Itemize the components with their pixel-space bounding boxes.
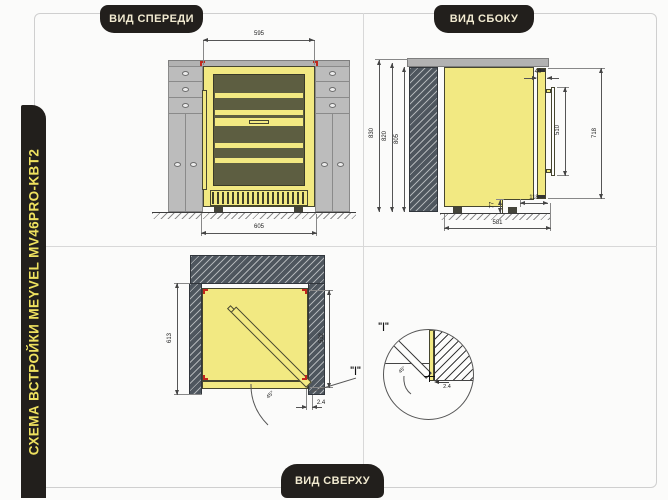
badge-front-label: ВИД СПЕРЕДИ — [109, 13, 194, 25]
dimension-arrow — [520, 201, 525, 205]
quadrant-divider-vertical — [363, 13, 364, 487]
detail-swing-arc — [384, 330, 474, 420]
dimension-arrow — [201, 231, 206, 235]
dimension-arrow — [563, 171, 567, 176]
dimension-arrow — [377, 207, 381, 212]
installation-schema-page: СХЕМА ВСТРОЙКИ MEYVEL MV46PRO-KBT2 ВИД С… — [0, 0, 668, 500]
cabinet-knob — [337, 162, 344, 167]
dimension-arrow — [203, 38, 208, 42]
dim-vent-height: 77 — [489, 202, 495, 209]
door-handle-front — [202, 90, 207, 190]
dimension-arrow — [402, 207, 406, 212]
dim-niche-depth: 613 — [167, 333, 173, 343]
top-cabinet-left-hatch — [189, 283, 202, 395]
cabinet-door-divider — [332, 113, 333, 212]
quadrant-divider-horizontal — [34, 246, 657, 247]
dimension-line — [444, 228, 551, 229]
drawer-knob — [182, 87, 189, 92]
dimension-line — [379, 60, 380, 212]
dimension-arrow — [390, 207, 394, 212]
dimension-arrow — [563, 87, 567, 92]
drawer-knob — [329, 71, 336, 76]
red-corner-mark — [203, 289, 208, 294]
dimension-arrow — [498, 208, 502, 213]
shelf — [215, 93, 303, 98]
dimension-line — [565, 87, 566, 176]
drawer-divider — [168, 97, 203, 98]
dim-body-depth: 532 — [319, 333, 325, 343]
dimension-line — [203, 40, 315, 41]
cabinet-knob — [174, 162, 181, 167]
cabinet-knob — [321, 162, 328, 167]
red-corner-mark — [203, 375, 208, 380]
red-corner-mark — [302, 289, 307, 294]
dim-door-thickness: 40 — [530, 69, 546, 75]
dimension-arrow — [312, 231, 317, 235]
dim-mid-height: 820 — [382, 131, 388, 141]
dim-door-height: 718 — [592, 128, 598, 138]
dimension-arrow — [390, 63, 394, 68]
detail-dim-gap: 2.4 — [439, 385, 455, 391]
fridge-glass-door — [213, 74, 305, 186]
shelf — [215, 158, 303, 163]
dimension-line — [439, 382, 449, 383]
ventilation-grille — [210, 190, 308, 206]
fridge-door-side — [537, 68, 546, 199]
dimension-line — [177, 283, 178, 395]
control-display — [249, 120, 269, 124]
dimension-line — [201, 233, 317, 234]
dimension-arrow — [309, 38, 314, 42]
detail-ref-label: "|" — [350, 366, 361, 375]
side-countertop — [407, 58, 549, 67]
badge-top-view: ВИД СВЕРХУ — [281, 464, 384, 498]
grille-slats — [212, 192, 306, 204]
fridge-body-side — [444, 67, 534, 207]
cabinet-door-divider — [185, 113, 186, 212]
extension-line — [548, 198, 605, 199]
dimension-line — [601, 68, 602, 199]
dim-overall-height: 830 — [369, 128, 375, 138]
dimension-arrow — [377, 60, 381, 65]
dim-door-width: 595 — [203, 31, 315, 37]
shelf — [215, 110, 303, 115]
ground-hatch-front — [152, 212, 356, 219]
dimension-arrow — [599, 68, 603, 73]
dim-handle-length: 510 — [555, 125, 561, 135]
drawer-knob — [182, 103, 189, 108]
dim-niche-height: 805 — [394, 134, 400, 144]
dimension-line — [392, 63, 393, 212]
door-swing-arc — [240, 380, 320, 430]
dimension-arrow — [599, 194, 603, 199]
ground-hatch-side — [440, 213, 551, 220]
badge-side-label: ВИД СБОКУ — [450, 13, 519, 25]
dimension-arrow — [532, 76, 537, 80]
sidebar-title-bar: СХЕМА ВСТРОЙКИ MEYVEL MV46PRO-KBT2 — [21, 105, 46, 498]
extension-line — [314, 40, 315, 65]
badge-side-view: ВИД СБОКУ — [434, 5, 534, 33]
dim-niche-width: 605 — [201, 224, 317, 230]
side-wall-hatch-panel — [409, 67, 438, 212]
extension-line — [548, 68, 605, 69]
dimension-line — [404, 67, 405, 212]
drawer-divider — [315, 97, 350, 98]
dimension-arrow — [175, 283, 179, 288]
drawer-knob — [329, 87, 336, 92]
drawer-divider — [168, 81, 203, 82]
cabinet-knob — [190, 162, 197, 167]
dimension-arrow — [444, 226, 449, 230]
rear-vent-notch — [502, 199, 534, 213]
drawer-knob — [182, 71, 189, 76]
dim-depth: 581 — [444, 220, 551, 226]
extension-line — [203, 40, 204, 65]
detail-circle: 2.4 45° — [383, 329, 474, 420]
shelf — [215, 143, 303, 148]
badge-top-label: ВИД СВЕРХУ — [295, 475, 370, 487]
dimension-arrow — [543, 201, 548, 205]
drawer-divider — [315, 81, 350, 82]
drawer-knob — [329, 103, 336, 108]
top-cabinet-back-hatch — [190, 255, 325, 284]
dimension-arrow — [498, 200, 502, 205]
dimension-arrow — [402, 67, 406, 72]
dimension-line — [329, 290, 330, 388]
dimension-arrow — [175, 390, 179, 395]
dimension-arrow — [327, 290, 331, 295]
sidebar-title: СХЕМА ВСТРОЙКИ MEYVEL MV46PRO-KBT2 — [26, 148, 41, 455]
dim-vent-depth: 118 — [517, 195, 551, 201]
badge-front-view: ВИД СПЕРЕДИ — [100, 5, 203, 33]
dimension-arrow — [546, 226, 551, 230]
dimension-arrow — [547, 76, 552, 80]
